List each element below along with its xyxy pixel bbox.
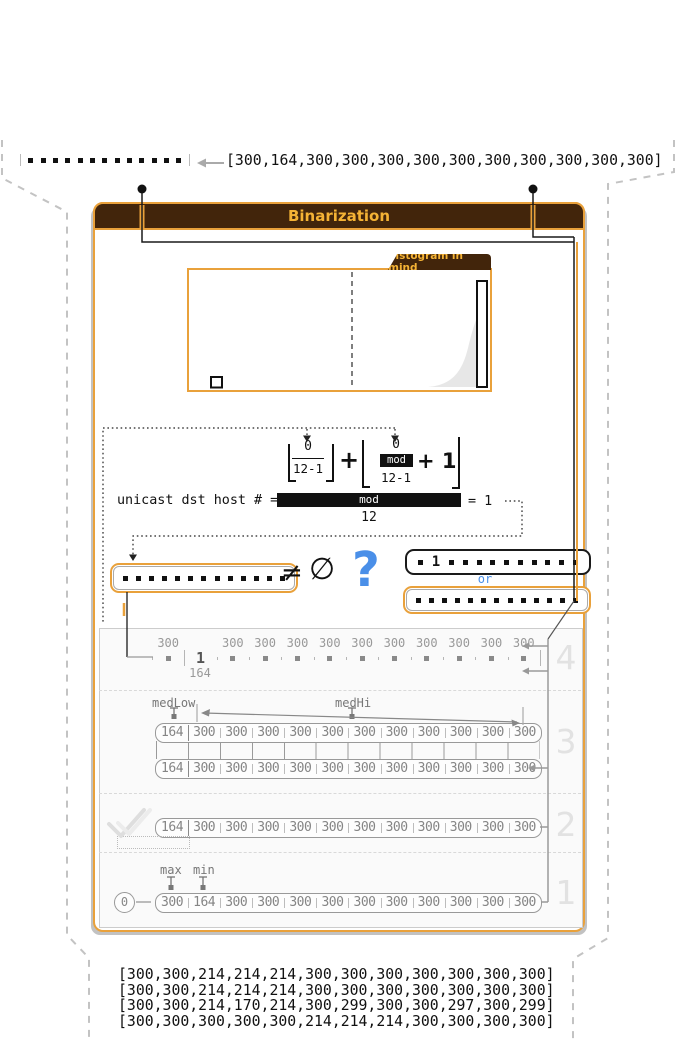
output-array-4: [300,300,300,300,300,214,214,214,300,300… [118,1014,555,1030]
option-dots-box [403,586,591,614]
output-array-3: [300,300,214,170,214,300,299,300,300,297… [118,998,555,1014]
or-label: or [405,572,565,586]
step-separator-4-3 [99,690,581,691]
output-array-2: [300,300,214,214,214,300,300,300,300,300… [118,983,555,999]
candidate-dots-box [110,563,298,593]
step-number-2: 2 [548,805,584,844]
strip-left-tick [20,154,21,166]
term2-plus-one: + 1 [417,449,457,473]
left-arrow-head [197,159,206,168]
output-array-1: [300,300,214,214,214,300,300,300,300,300… [118,967,555,983]
output-arrays: [300,300,214,214,214,300,300,300,300,300… [118,967,555,1029]
start-index-circle: 0 [114,892,135,913]
max-label: max [160,863,182,877]
step3-row2: 164300300300300300300300300300300300 [155,759,542,779]
strip-right-tick [189,154,190,166]
floor-bracket-right-1 [326,444,334,482]
step-number-4: 4 [548,638,584,677]
step-separator-2-1 [99,852,581,853]
step4-below-label: 164 [180,666,220,680]
question-mark: ? [352,542,380,598]
step4-dot-row: 1 [152,650,541,666]
equation-result: = 1 [468,494,492,509]
equation-denominator: 12 [277,510,461,525]
term1-fraction-line [292,458,324,459]
input-dotted-strip [20,152,190,168]
not-equal-sign: ≠ [281,558,303,588]
term1-numerator: 0 [293,439,323,454]
binarization-diagram: [300,164,300,300,300,300,300,300,300,300… [0,0,676,1042]
step4-top-labels: 300300300300300300300300300300300 [152,636,540,650]
step3-row1: 164300300300300300300300300300300300 [155,723,542,743]
medhi-label: medHi [335,696,371,710]
equation-mod-bar: mod [277,493,461,507]
step-separator-3-2 [99,793,581,794]
term2-numerator: 0 [378,437,414,452]
step3-row-connectors [156,741,540,759]
step2-dotted-outline [117,836,190,849]
medlow-label: medLow [152,696,195,710]
panel-title: Binarization [93,202,585,230]
funnel-left [2,140,89,1042]
floor-bracket-left-2 [362,440,370,488]
floor-bracket-right-2 [452,437,460,489]
step2-row: 164300300300300300300300300300300300 [155,818,542,838]
histogram-box [187,268,492,392]
term2-denominator: 12-1 [378,470,414,485]
step-number-1: 1 [548,873,584,912]
histogram-tab: histogram in mind [388,254,491,270]
empty-set-symbol: ∅ [309,552,335,587]
input-node-right [529,185,538,194]
step-number-3: 3 [548,722,584,761]
step1-row: 300164300300300300300300300300300300 [155,893,542,913]
option-one-value: 1 [432,554,440,570]
input-node-left [138,185,147,194]
term1-denominator: 12-1 [292,461,324,476]
min-label: min [193,863,215,877]
input-array-text: [300,164,300,300,300,300,300,300,300,300… [226,152,663,169]
plus-sign: + [339,446,359,474]
term2-mod-chip: mod [380,454,413,467]
equation-label: unicast dst host # = [117,493,278,508]
